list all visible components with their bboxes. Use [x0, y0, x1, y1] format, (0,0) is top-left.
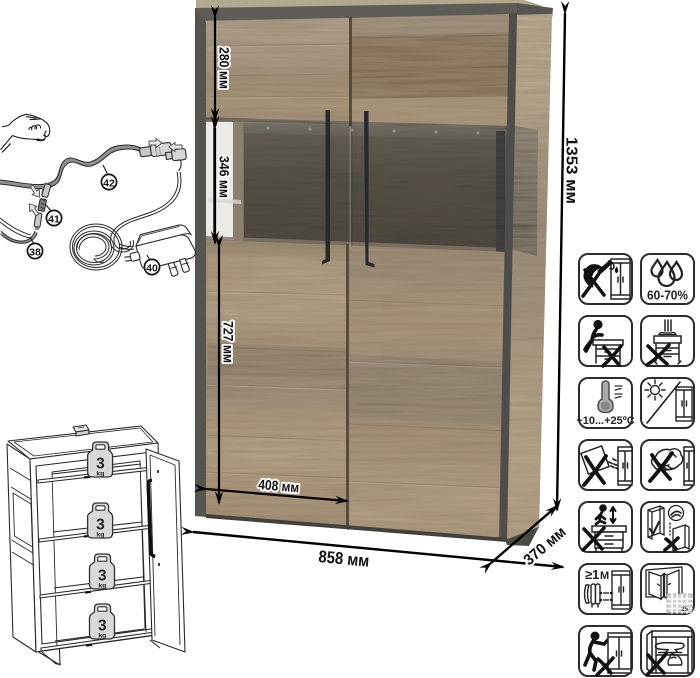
svg-text:346 мм: 346 мм	[217, 156, 233, 198]
svg-text:858 мм: 858 мм	[318, 547, 371, 571]
svg-text:42: 42	[103, 177, 115, 189]
svg-text:38: 38	[29, 246, 41, 258]
svg-text:≥1: ≥1	[585, 567, 599, 582]
svg-text:41: 41	[48, 213, 60, 225]
svg-text:40: 40	[146, 262, 158, 274]
svg-text:25: 25	[681, 606, 689, 613]
svg-text:kg: kg	[96, 532, 104, 539]
svg-text:280 мм: 280 мм	[217, 47, 233, 89]
svg-text:M: M	[600, 570, 609, 582]
svg-text:kg: kg	[98, 633, 106, 640]
svg-text:60-70%: 60-70%	[647, 289, 688, 303]
svg-text:kg: kg	[96, 471, 104, 478]
svg-text:727 мм: 727 мм	[221, 321, 237, 363]
svg-text:+10...+25ºC: +10...+25ºC	[576, 415, 635, 427]
svg-text:1353 мм: 1353 мм	[563, 137, 580, 204]
svg-text:kg: kg	[98, 583, 106, 590]
svg-text:408 мм: 408 мм	[258, 476, 300, 495]
